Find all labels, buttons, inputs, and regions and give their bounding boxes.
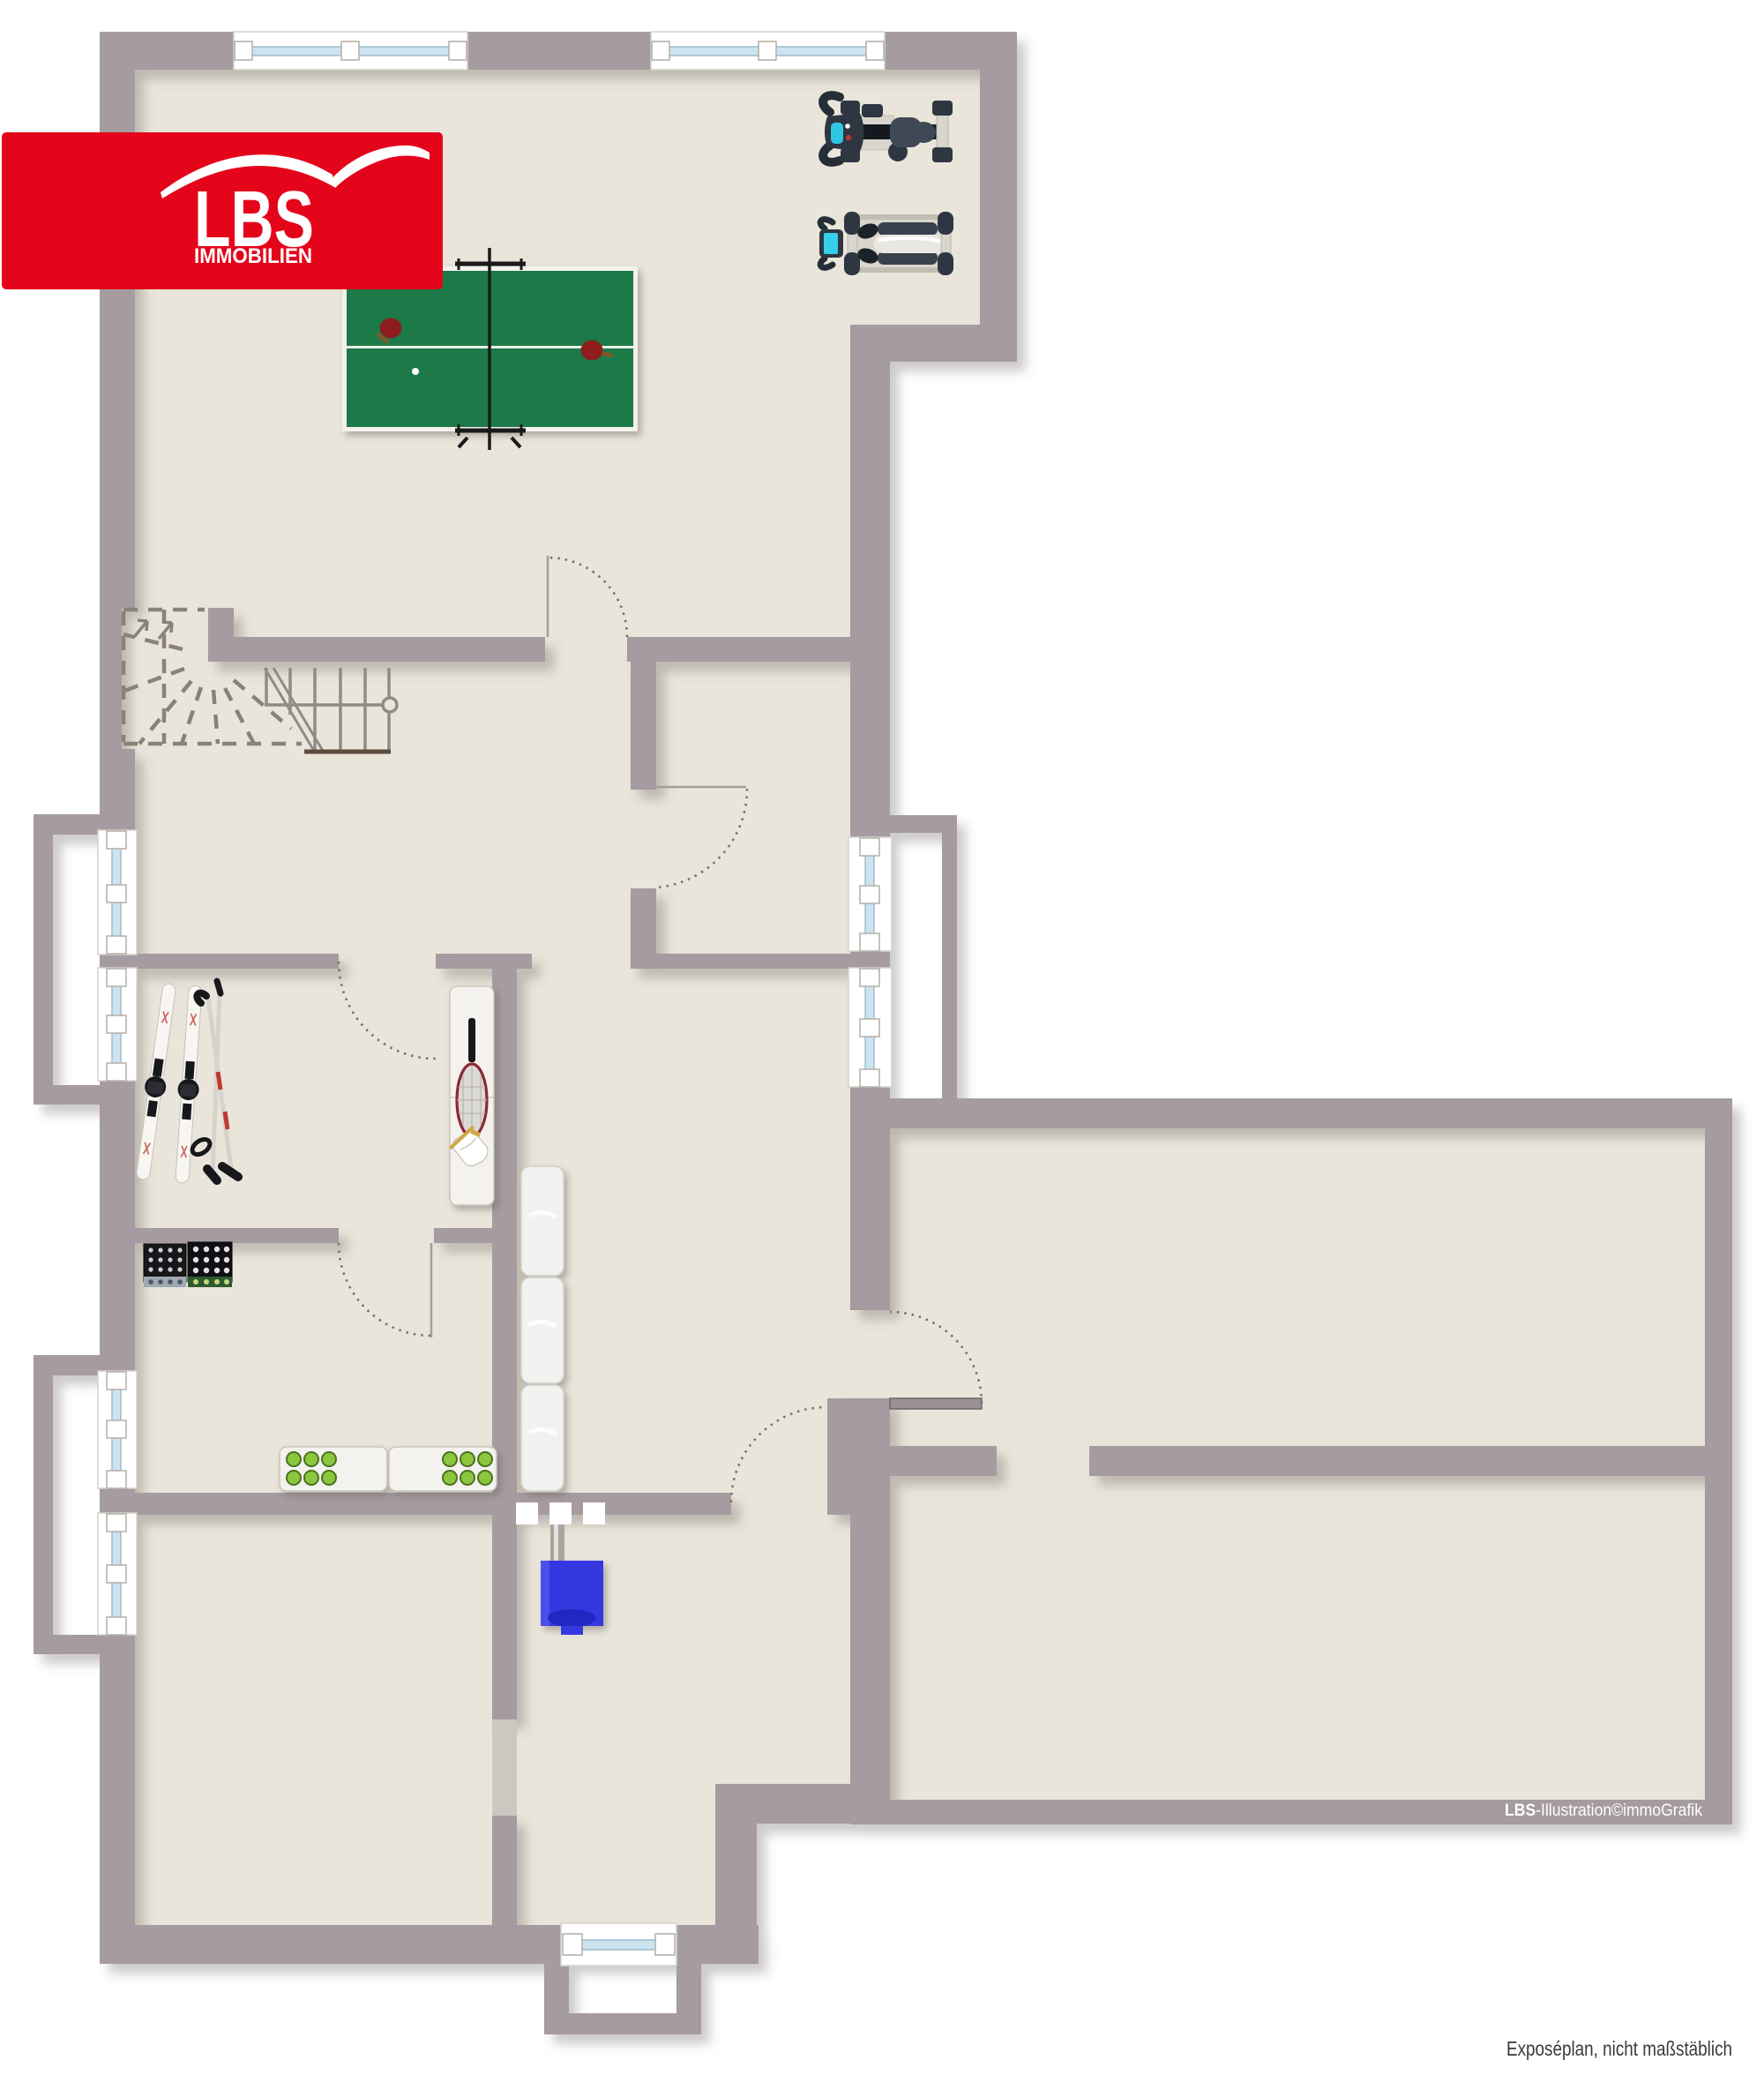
svg-text:Exposéplan, nicht maßstäblich: Exposéplan, nicht maßstäblich bbox=[1506, 2037, 1732, 2060]
svg-text:IMMOBILIEN: IMMOBILIEN bbox=[194, 244, 312, 268]
svg-text:LBS-Illustration©immoGrafik: LBS-Illustration©immoGrafik bbox=[1505, 1802, 1702, 1820]
